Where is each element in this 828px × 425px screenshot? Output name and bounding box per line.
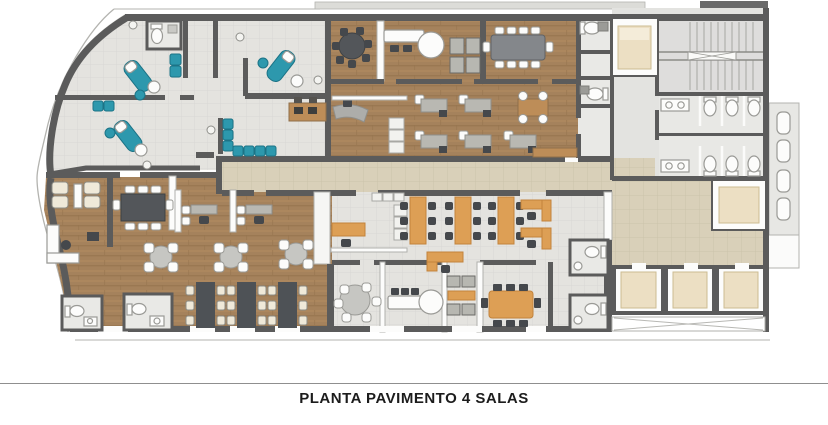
dental-unit-2 [135, 144, 147, 156]
elevator-2 [712, 180, 766, 230]
floor-plan [0, 0, 828, 360]
dental-stool-1 [135, 90, 145, 100]
vent-grille [612, 317, 765, 331]
side-terrace [766, 235, 799, 268]
corridor-floor [218, 158, 612, 192]
plan-caption: PLANTA PAVIMENTO 4 SALAS [0, 390, 828, 407]
wc-bl-2 [124, 294, 172, 330]
upper-balcony-slab [315, 2, 645, 9]
low-partition [332, 96, 407, 100]
low-partition-2 [331, 248, 407, 252]
dental-stool-2 [105, 128, 115, 138]
bench-desks [400, 197, 524, 244]
floor-plan-svg [0, 0, 828, 360]
wc-bm-1 [570, 240, 608, 275]
training-tables [186, 282, 307, 328]
duct [688, 52, 736, 60]
caption-divider [0, 383, 828, 384]
clinic-wc [147, 21, 181, 49]
credenza [533, 148, 577, 157]
dental-unit-1 [148, 81, 160, 93]
elevator-bank [610, 263, 767, 315]
wc-bl-1 [62, 296, 102, 330]
restrooms-core [659, 96, 763, 176]
dental-stool-3 [258, 58, 268, 68]
wc-bm-2 [570, 295, 608, 330]
dental-unit-3 [291, 75, 303, 87]
shaft [314, 192, 330, 264]
stairwell [659, 21, 763, 92]
cabinets [389, 118, 404, 153]
elevator-1 [612, 18, 658, 76]
